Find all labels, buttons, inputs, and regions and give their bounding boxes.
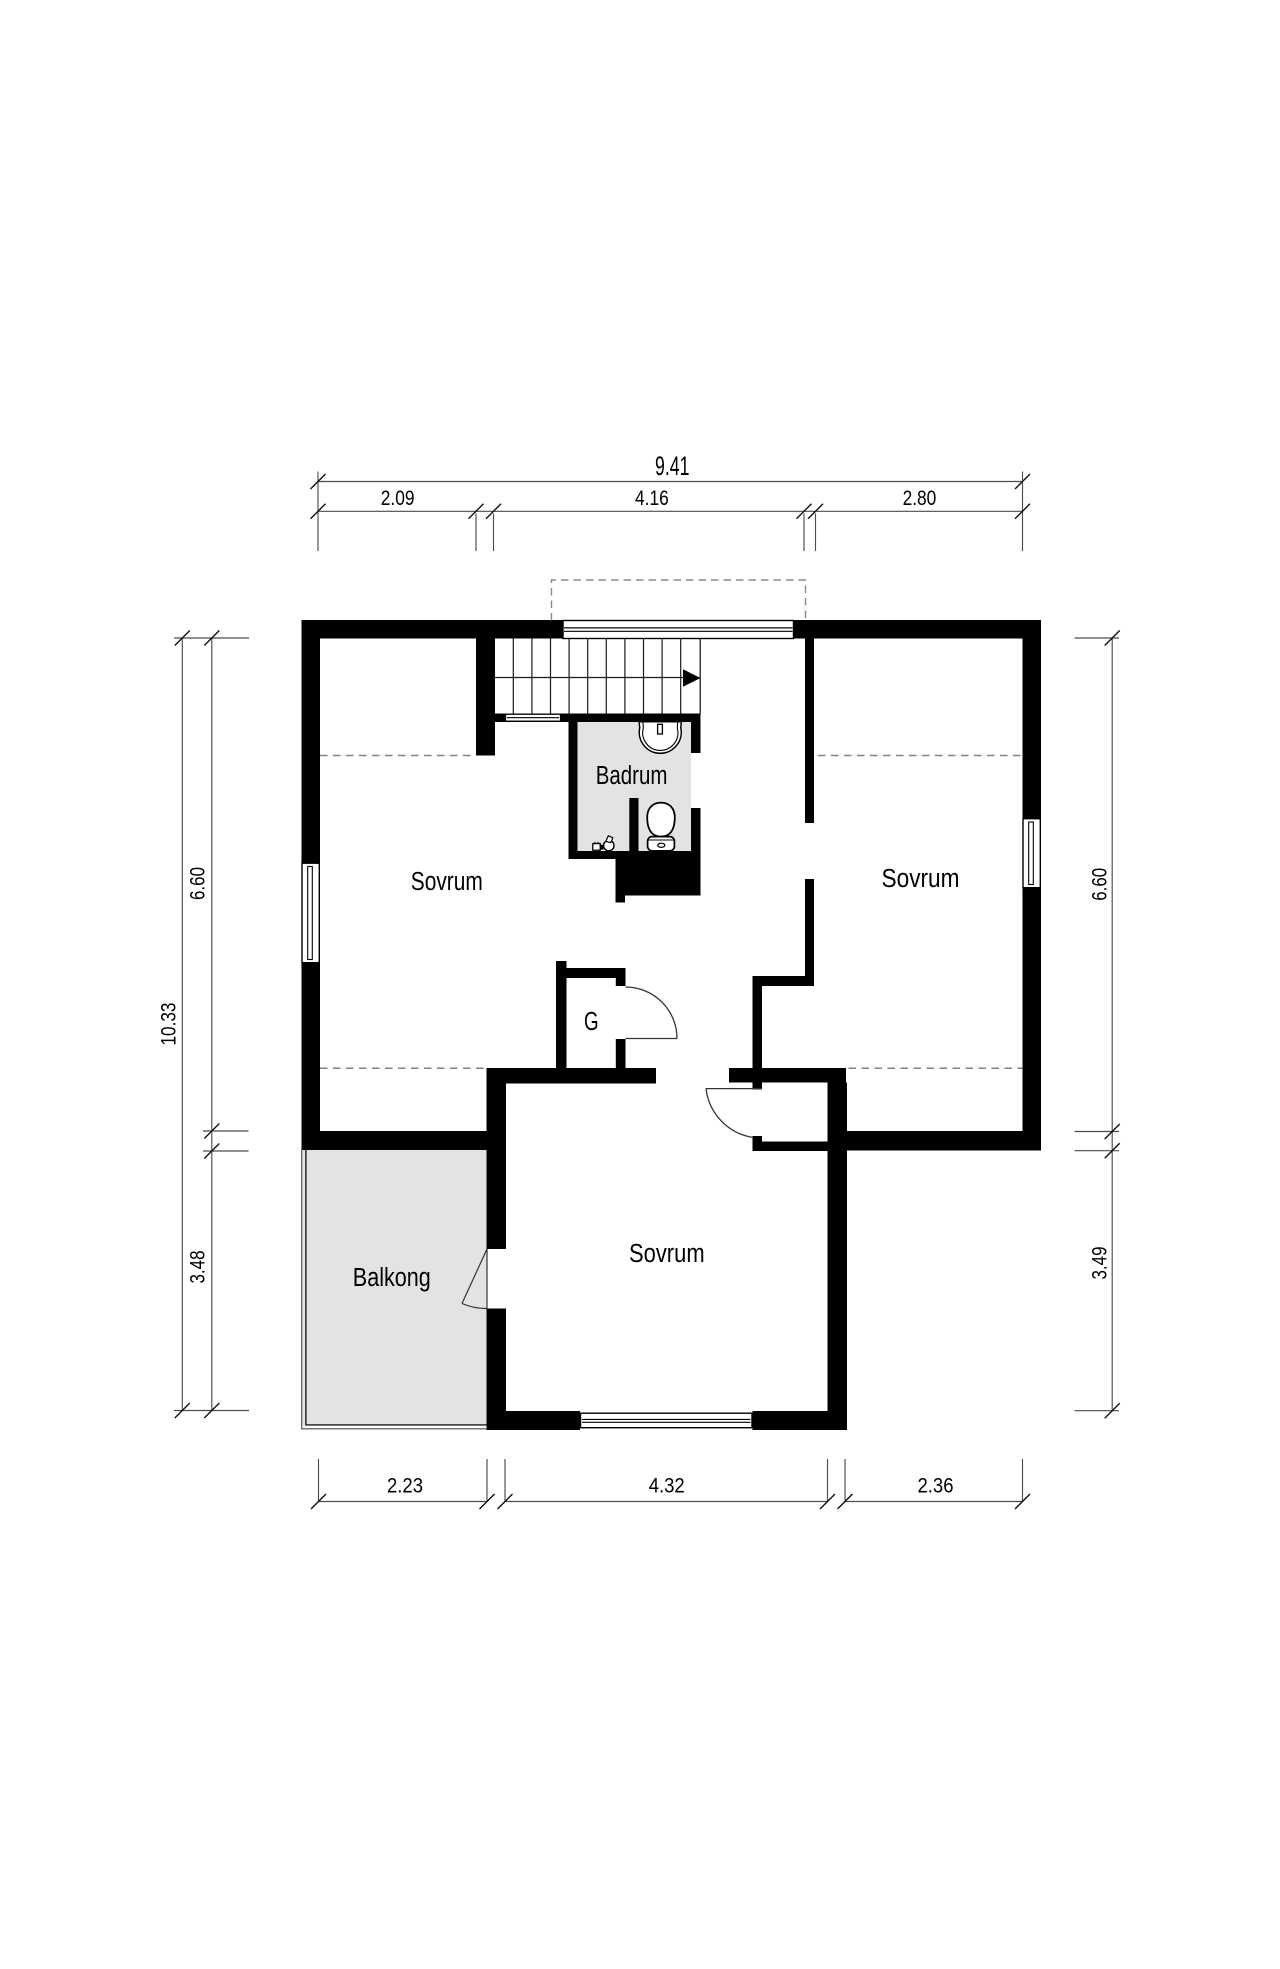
svg-text:6.60: 6.60 (186, 867, 209, 900)
svg-text:4.32: 4.32 (649, 1474, 685, 1497)
svg-text:Sovrum: Sovrum (882, 865, 960, 893)
svg-text:3.48: 3.48 (186, 1251, 209, 1284)
svg-text:2.80: 2.80 (903, 487, 937, 510)
svg-text:10.33: 10.33 (158, 1003, 181, 1046)
svg-text:2.09: 2.09 (381, 487, 415, 510)
svg-text:Badrum: Badrum (596, 762, 668, 790)
svg-text:Sovrum: Sovrum (411, 868, 483, 896)
svg-text:Balkong: Balkong (353, 1264, 431, 1292)
svg-text:4.16: 4.16 (635, 487, 669, 510)
svg-text:6.60: 6.60 (1089, 868, 1112, 901)
svg-text:G: G (584, 1008, 599, 1036)
svg-text:2.23: 2.23 (387, 1474, 423, 1497)
svg-text:3.49: 3.49 (1089, 1247, 1112, 1280)
svg-text:Sovrum: Sovrum (629, 1240, 705, 1268)
svg-text:9.41: 9.41 (655, 451, 689, 481)
svg-text:2.36: 2.36 (918, 1474, 954, 1497)
